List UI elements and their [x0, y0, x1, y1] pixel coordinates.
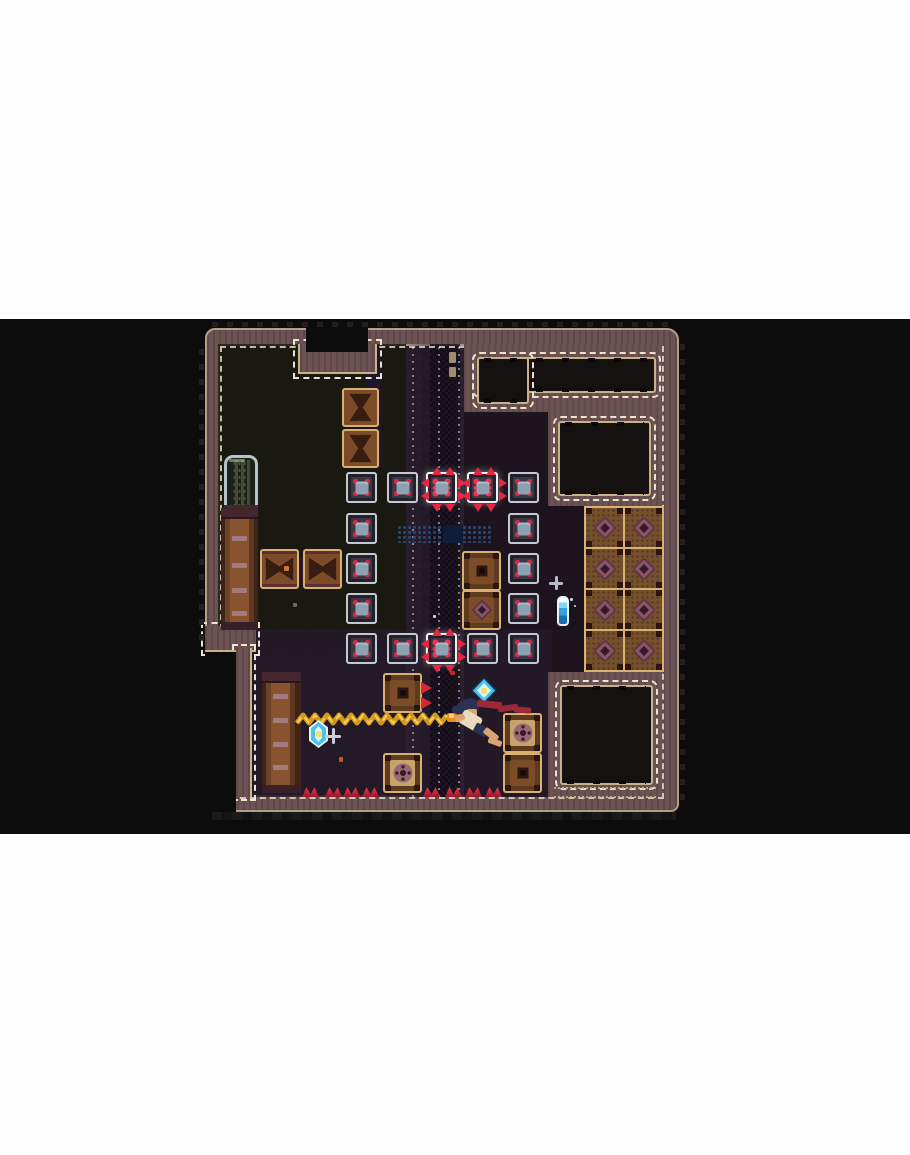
wooden-pillar	[262, 672, 301, 793]
ghost-block-core	[443, 525, 463, 543]
hanging-cage	[224, 455, 258, 510]
wall-grid-tile	[584, 629, 625, 672]
panel-crate	[462, 590, 501, 630]
lower-left-wall	[236, 648, 252, 797]
pillar-slat	[273, 718, 288, 723]
spike	[486, 504, 496, 512]
alcove-bottom-right-recess	[560, 685, 653, 785]
crate	[342, 388, 379, 427]
wall-grid-tile	[623, 588, 664, 631]
room-content-layer	[0, 0, 910, 1155]
wall-teeth-trim	[199, 340, 204, 640]
steel-block	[346, 553, 377, 584]
dash-trail-tip-glint	[449, 714, 454, 718]
spike	[499, 491, 507, 501]
potion-pickup	[557, 596, 569, 626]
panel-crate-face	[510, 720, 535, 746]
steel-block	[387, 472, 418, 503]
floor-spike	[465, 786, 482, 797]
player-face	[467, 709, 477, 718]
steel-block	[346, 472, 377, 503]
crate	[342, 429, 379, 468]
steel-block	[508, 633, 539, 664]
player-shorts	[472, 722, 489, 737]
panel-crate	[503, 713, 542, 753]
gem-core	[316, 731, 322, 737]
pillar-slat	[232, 536, 247, 541]
spiked-steel-block	[426, 472, 457, 503]
pillar-slat	[273, 694, 288, 699]
panel-crate-face	[510, 760, 535, 786]
pillar-slat	[232, 611, 247, 616]
wall-grid-tile	[623, 629, 664, 672]
wooden-pillar	[221, 508, 258, 630]
steel-block	[508, 593, 539, 624]
panel-crate-face	[469, 558, 494, 584]
alcove-top-right-seam	[479, 376, 527, 391]
steel-block	[508, 472, 539, 503]
player-leg	[487, 737, 502, 747]
crate-dot	[284, 566, 289, 571]
steel-block	[346, 593, 377, 624]
panel-crate	[383, 673, 422, 713]
steel-block	[387, 633, 418, 664]
panel-crate-face	[469, 597, 494, 623]
wall-teeth-trim	[680, 340, 685, 800]
pillar-slat	[273, 742, 288, 747]
steel-block	[346, 513, 377, 544]
panel-crate	[503, 753, 542, 793]
alcove-right-recess	[558, 421, 651, 496]
spike	[473, 467, 483, 475]
pillar-slat	[232, 563, 247, 568]
floor-spike	[325, 786, 342, 797]
sparkle-ray	[549, 582, 563, 585]
spike	[499, 478, 507, 488]
steel-block	[508, 513, 539, 544]
screenshot-page	[0, 0, 910, 1155]
wall-grid-tile	[584, 506, 625, 549]
pillar-slat	[232, 588, 247, 593]
gem-core	[481, 688, 487, 694]
wall-grid-tile	[584, 588, 625, 631]
pillar-slat	[273, 765, 288, 770]
wall-grid-tile	[584, 547, 625, 590]
panel-crate-face	[390, 680, 415, 706]
spiked-steel-block	[426, 633, 457, 664]
crate	[303, 549, 342, 589]
panel-crate-face	[390, 760, 415, 786]
panel-crate	[383, 753, 422, 793]
alcove-bottom-right-scallop-trim	[554, 787, 656, 798]
player-scarf	[498, 704, 519, 713]
spiked-steel-block	[467, 472, 498, 503]
lower-left-exterior	[205, 652, 236, 812]
player-leg	[483, 727, 500, 742]
sparkle-icon	[325, 728, 341, 744]
steel-block	[508, 553, 539, 584]
floor-spike	[302, 786, 319, 797]
sparkle-icon	[549, 576, 563, 590]
sparkle-ray	[325, 735, 341, 738]
potion-speck	[570, 598, 573, 601]
corridor-dotted-line	[458, 344, 460, 797]
steel-block	[346, 633, 377, 664]
gem-pickup-large	[471, 677, 497, 704]
spike	[486, 467, 496, 475]
steel-block	[467, 633, 498, 664]
wall-teeth-trim	[212, 322, 672, 327]
corridor-door-mark	[449, 352, 456, 363]
floor-spike	[485, 786, 502, 797]
floor-speck	[450, 671, 455, 675]
crate	[260, 549, 299, 589]
spike	[473, 504, 483, 512]
floor-spike	[343, 786, 360, 797]
room-bottom-shadow	[212, 812, 676, 820]
panel-crate	[462, 551, 501, 591]
floor-speck	[433, 615, 436, 618]
wall-grid-tile	[623, 506, 664, 549]
floor-speck	[339, 757, 343, 762]
corridor-door-mark	[449, 367, 456, 377]
wall-grid-tile	[623, 547, 664, 590]
floor-spike	[362, 786, 379, 797]
potion-speck	[574, 605, 576, 607]
floor-speck	[293, 603, 297, 607]
